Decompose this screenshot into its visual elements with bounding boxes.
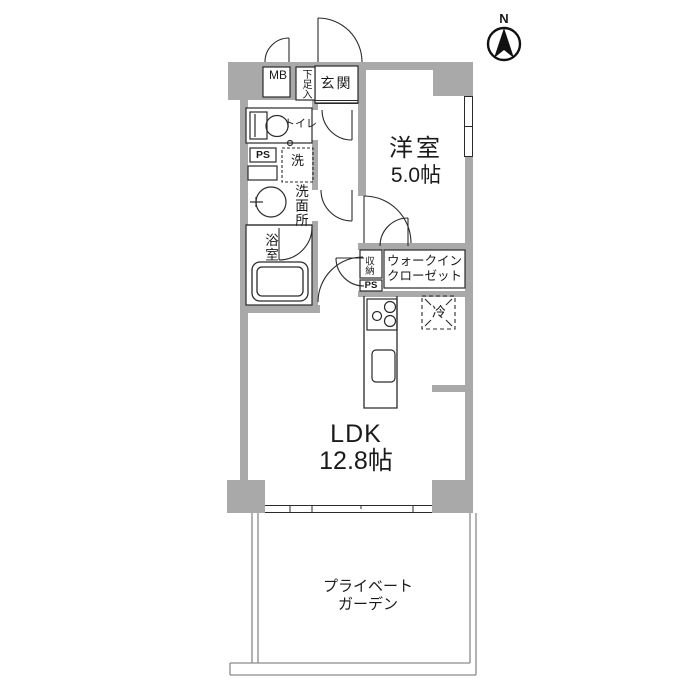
- western-room-name: 洋室: [366, 136, 466, 162]
- toilet-door: [322, 110, 352, 140]
- western-room-size: 5.0帖: [366, 164, 466, 188]
- shoe-cabinet-label: 下足入: [300, 69, 311, 99]
- walk-in-closet-door: [380, 218, 408, 246]
- refrigerator-label: 冷: [428, 304, 450, 321]
- pipe-space-lower-label: PS: [360, 280, 382, 291]
- ldk-size: 12.8帖: [296, 447, 416, 475]
- entrance-label: 玄関: [315, 74, 358, 92]
- garden-line2: ガーデン: [318, 596, 418, 614]
- pipe-space-upper-label: PS: [250, 149, 276, 161]
- western-room-door: [364, 196, 411, 243]
- bathroom-label: 浴室: [262, 230, 278, 264]
- washbasin: [250, 187, 286, 217]
- meter-box-label: MB: [269, 68, 284, 82]
- toilet-label: トイレ: [284, 118, 312, 131]
- stove: [367, 299, 397, 330]
- compass-north-label: N: [494, 12, 514, 26]
- floor-plan: N MB 下足入 玄関 トイレ PS 洗 洗面所 浴室 洋室 5.0帖 収納 ウ…: [0, 0, 700, 700]
- north-arrow-icon: [488, 28, 520, 60]
- hall-ldk-door: [318, 257, 363, 302]
- meter-box-door: [265, 38, 289, 62]
- walk-in-closet-line2: クローゼット: [384, 269, 465, 284]
- ldk-name: LDK: [306, 420, 406, 448]
- window-south: [265, 506, 432, 513]
- kitchen-sink: [372, 350, 395, 382]
- vanity-counter-box: [248, 166, 277, 180]
- washroom-door: [321, 190, 352, 221]
- garden-line1: プライベート: [318, 578, 418, 596]
- closet-label: 収納: [363, 253, 374, 277]
- entrance-door: [318, 18, 362, 62]
- walk-in-closet-line1: ウォークイン: [384, 254, 465, 269]
- washing-machine-label: 洗: [282, 153, 313, 168]
- washroom-label: 洗面所: [292, 183, 308, 229]
